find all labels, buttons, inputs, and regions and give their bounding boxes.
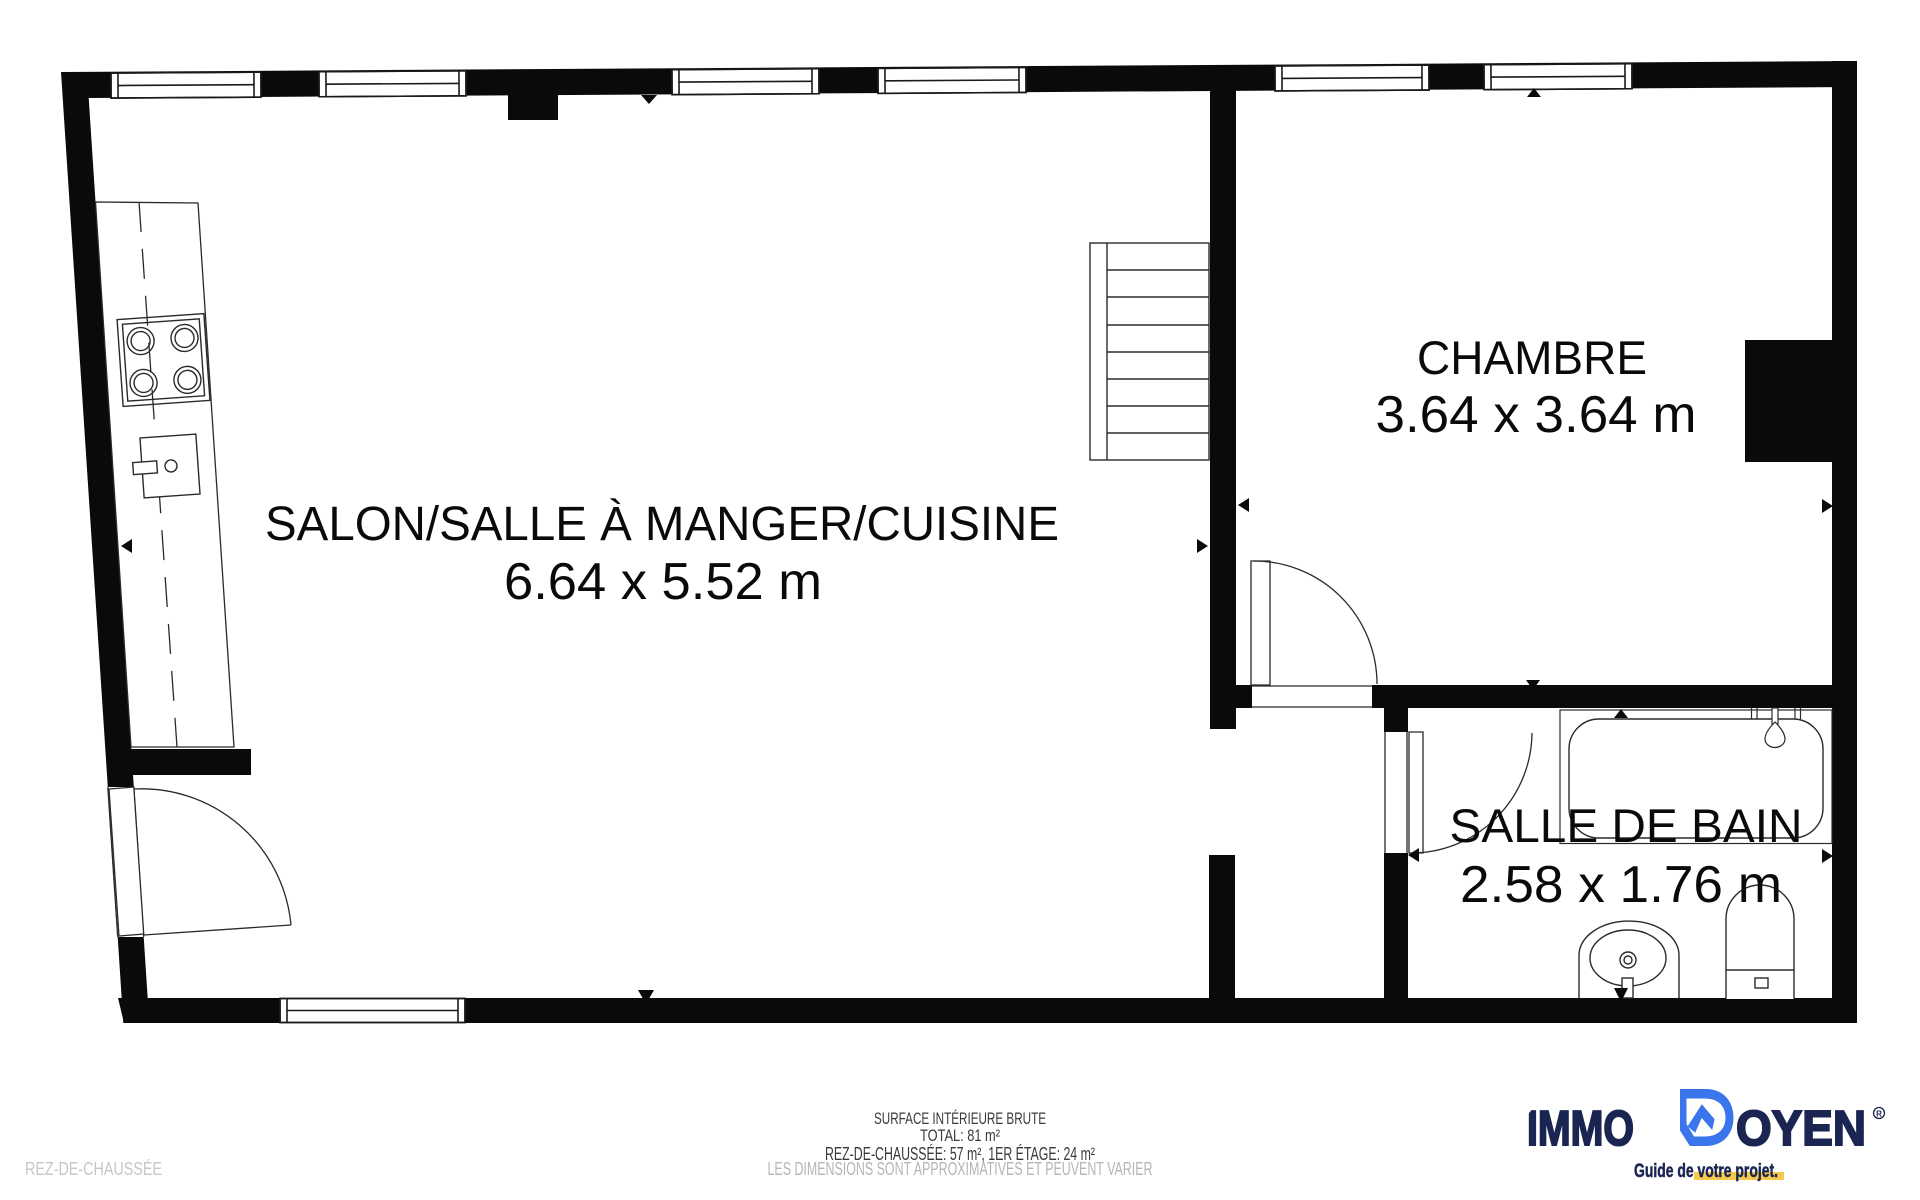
svg-text:CHAMBRE: CHAMBRE (1417, 331, 1647, 384)
svg-text:R: R (1876, 1110, 1882, 1119)
svg-text:REZ-DE-CHAUSSÉE: REZ-DE-CHAUSSÉE (25, 1159, 162, 1179)
svg-text:TOTAL: 81 m²: TOTAL: 81 m² (920, 1127, 1000, 1145)
svg-text:LES DIMENSIONS SONT APPROXIMAT: LES DIMENSIONS SONT APPROXIMATIVES ET PE… (768, 1159, 1153, 1179)
svg-text:IMMO: IMMO (1527, 1102, 1634, 1156)
svg-text:2.58 x 1.76 m: 2.58 x 1.76 m (1460, 856, 1782, 914)
svg-text:3.64 x 3.64 m: 3.64 x 3.64 m (1376, 386, 1697, 444)
svg-text:SALON/SALLE À MANGER/CUISINE: SALON/SALLE À MANGER/CUISINE (265, 498, 1059, 551)
svg-text:Guide de votre projet.: Guide de votre projet. (1634, 1161, 1778, 1182)
svg-text:OYEN: OYEN (1736, 1102, 1866, 1156)
svg-text:6.64 x 5.52 m: 6.64 x 5.52 m (504, 553, 822, 611)
svg-text:SURFACE INTÉRIEURE BRUTE: SURFACE INTÉRIEURE BRUTE (874, 1109, 1046, 1128)
svg-text:SALLE DE BAIN: SALLE DE BAIN (1450, 799, 1803, 852)
